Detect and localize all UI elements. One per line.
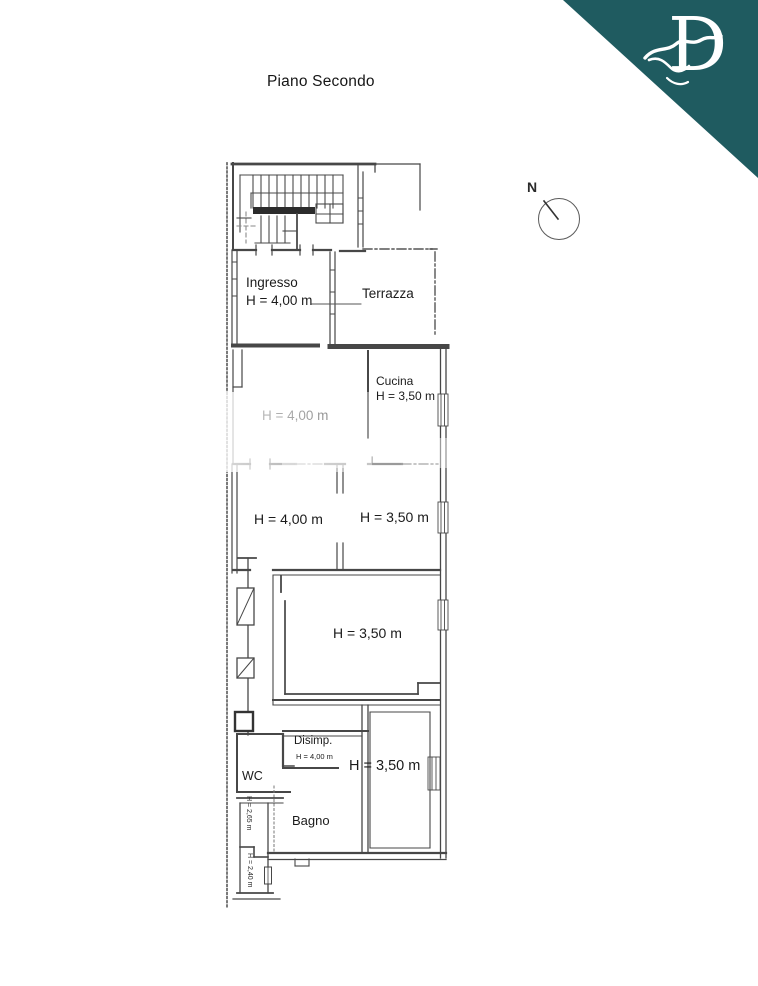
room-label-cucina: Cucina <box>376 374 413 388</box>
stairwell <box>232 163 420 250</box>
lower-partition-wall <box>233 570 440 592</box>
room-height-cucina: H = 3,50 m <box>376 389 435 403</box>
west-wall-mid <box>232 350 242 573</box>
room-e-outline <box>370 712 430 848</box>
south-exterior-wall <box>268 853 446 866</box>
room-height-small-2: H = 2,40 m <box>246 853 253 887</box>
compass-needle-icon <box>544 201 558 219</box>
room-height-a: H = 4,00 m <box>262 408 328 423</box>
room-height-e: H = 3,50 m <box>349 758 420 774</box>
room-height-d: H = 3,50 m <box>333 625 402 641</box>
west-facade <box>235 558 256 735</box>
room-height-b: H = 4,00 m <box>254 511 323 527</box>
room-height-ingresso: H = 4,00 m <box>246 293 312 308</box>
room-label-disimp: Disimp. <box>294 735 332 747</box>
room-height-disimp: H = 4,00 m <box>296 752 333 761</box>
brand-logo-flourish-icon <box>563 0 758 178</box>
room-label-ingresso: Ingresso <box>246 275 298 290</box>
room-label-bagno: Bagno <box>292 813 330 828</box>
east-windows <box>428 394 448 790</box>
room-label-terrazza: Terrazza <box>362 286 414 301</box>
room-label-wc: WC <box>242 769 263 783</box>
stairs <box>237 175 343 250</box>
room-height-c: H = 3,50 m <box>360 509 429 525</box>
room-partition <box>337 464 343 570</box>
small-rooms-walls <box>233 798 283 899</box>
mid-partition-wall <box>233 457 438 469</box>
room-height-small-1: H = 2,65 m <box>245 796 252 830</box>
stairwell-south-wall <box>233 245 365 255</box>
